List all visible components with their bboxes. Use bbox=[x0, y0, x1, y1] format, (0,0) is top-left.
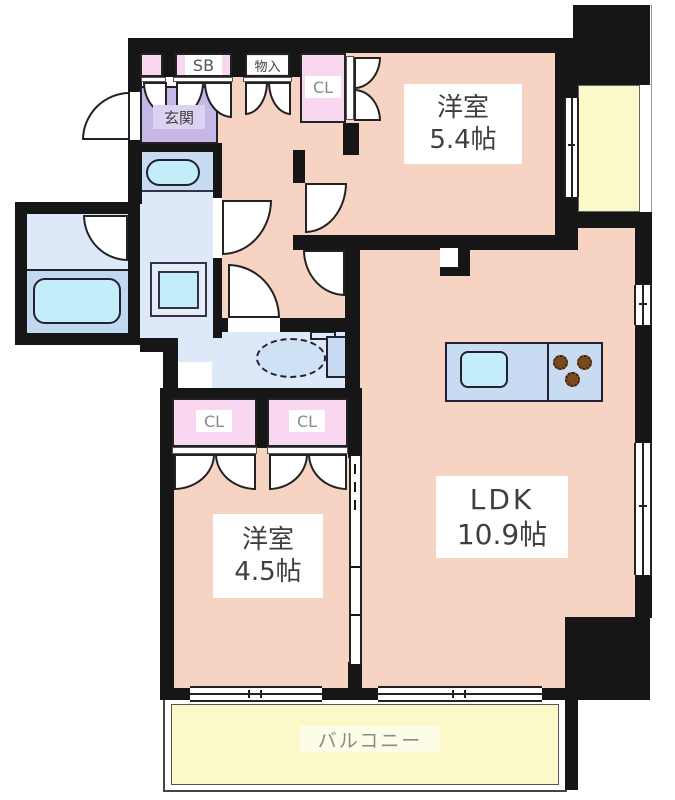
storage-label: 物入 bbox=[247, 56, 288, 74]
wall-bedroom54-ldk bbox=[293, 235, 578, 250]
door-band-closet-right bbox=[267, 447, 348, 454]
washing-machine-pan-inner bbox=[158, 271, 199, 309]
pillar-bottom-right bbox=[565, 617, 650, 700]
ldk-label: LDK 10.9帖 bbox=[436, 476, 568, 558]
ldk-size: 10.9帖 bbox=[457, 517, 547, 552]
shoe-box-text: SB bbox=[193, 56, 214, 75]
stove-burner-2 bbox=[577, 355, 592, 370]
balcony-label: バルコニー bbox=[300, 726, 440, 752]
closet-left-text: CL bbox=[204, 412, 224, 431]
bedroom-54-side-window bbox=[564, 98, 579, 197]
closet-right-text: CL bbox=[297, 412, 317, 431]
wall-under-closet bbox=[343, 123, 359, 155]
bedroom-54-name: 洋室 bbox=[437, 92, 489, 125]
wall-balcony-right bbox=[565, 700, 578, 790]
toilet-bowl bbox=[256, 338, 326, 378]
sliding-partition bbox=[349, 456, 362, 664]
wall-niche-inner bbox=[440, 248, 458, 267]
toilet-door-gap bbox=[228, 318, 280, 332]
closet-left-label: CL bbox=[196, 410, 232, 432]
wall-sidebalcony-bottom bbox=[568, 212, 652, 228]
balcony-window-left bbox=[190, 686, 322, 702]
bedroom-54-size: 5.4帖 bbox=[429, 124, 496, 157]
side-balcony bbox=[578, 85, 640, 212]
bedroom-45-name: 洋室 bbox=[242, 524, 294, 557]
entrance-door bbox=[82, 92, 130, 140]
entrance-text: 玄関 bbox=[164, 107, 194, 128]
shoe-box-label: SB bbox=[185, 55, 222, 75]
closet-upper-label: CL bbox=[305, 76, 341, 98]
wall-closet-mid bbox=[257, 398, 267, 448]
door-band-closet-upper bbox=[346, 56, 354, 120]
wall-top bbox=[128, 38, 578, 53]
ldk-window-large bbox=[634, 443, 652, 575]
storage-text: 物入 bbox=[254, 56, 280, 75]
kitchen-counter bbox=[445, 342, 603, 402]
ldk-name: LDK bbox=[470, 482, 535, 517]
void-pocket bbox=[178, 362, 212, 388]
door-band-closet-left bbox=[172, 447, 257, 454]
balcony-text: バルコニー bbox=[318, 726, 423, 753]
wall-toilet-right bbox=[345, 250, 360, 400]
wall-under-entrance bbox=[128, 143, 222, 152]
stove-burner-3 bbox=[565, 372, 580, 387]
bedroom-45-label: 洋室 4.5帖 bbox=[213, 514, 323, 598]
bathtub bbox=[33, 278, 121, 324]
wall-pillar-2 bbox=[232, 53, 245, 77]
bedroom-54-label: 洋室 5.4帖 bbox=[404, 84, 522, 164]
washbasin bbox=[146, 159, 200, 186]
kitchen-divider bbox=[547, 344, 549, 400]
pipe-space-box bbox=[140, 53, 163, 77]
wall-hall-bedroom54 bbox=[293, 150, 305, 183]
wall-pillar-3 bbox=[290, 53, 300, 77]
entrance-label: 玄関 bbox=[153, 105, 205, 129]
pillar-top-right bbox=[573, 5, 650, 85]
ldk-window-small bbox=[634, 285, 652, 325]
bedroom-45-size: 4.5帖 bbox=[234, 556, 301, 589]
wall-center-stub bbox=[322, 688, 362, 700]
wall-partition-top bbox=[348, 388, 362, 458]
balcony-window-right bbox=[378, 686, 542, 702]
floor-plan: 洋室 5.4帖 LDK 10.9帖 洋室 4.5帖 玄関 SB 物入 CL CL… bbox=[0, 0, 675, 800]
wall-pillar-1 bbox=[163, 53, 175, 77]
stove-burner-1 bbox=[553, 355, 568, 370]
closet-upper-text: CL bbox=[313, 78, 333, 97]
kitchen-sink bbox=[460, 351, 508, 388]
closet-right-label: CL bbox=[289, 410, 325, 432]
washroom-door-gap bbox=[213, 198, 222, 258]
